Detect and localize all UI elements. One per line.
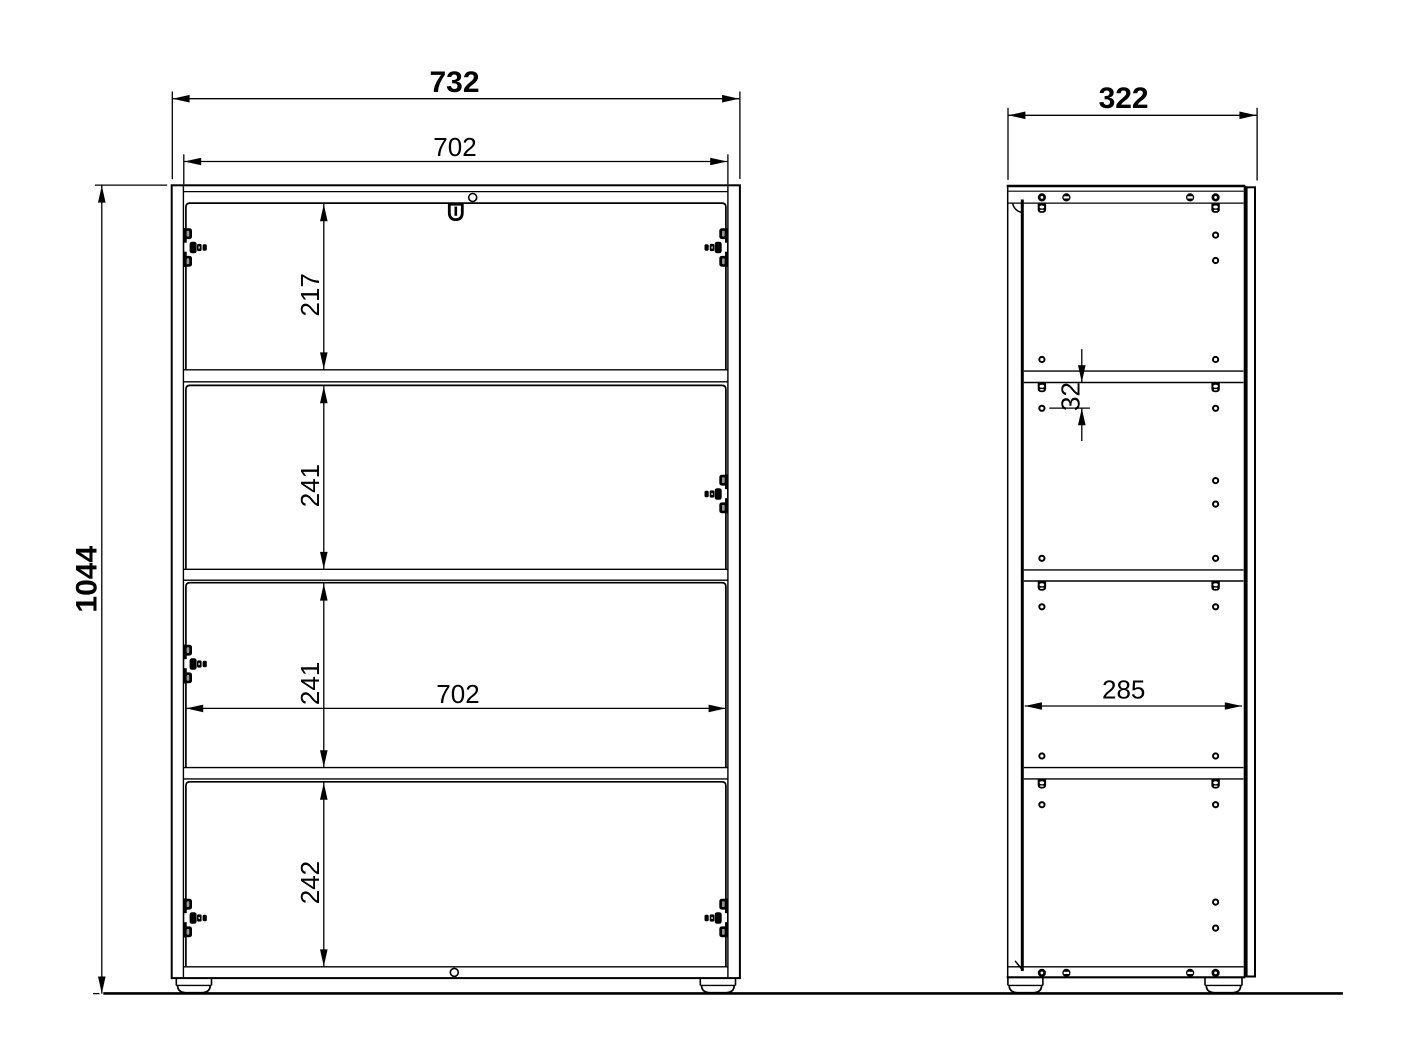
svg-text:32: 32: [1056, 382, 1086, 411]
svg-text:322: 322: [1099, 82, 1149, 115]
svg-text:241: 241: [295, 662, 325, 705]
svg-text:1044: 1044: [71, 546, 104, 613]
svg-text:241: 241: [295, 464, 325, 507]
svg-text:702: 702: [433, 132, 476, 162]
svg-text:285: 285: [1102, 674, 1145, 704]
svg-text:702: 702: [436, 679, 479, 709]
svg-text:732: 732: [429, 66, 479, 99]
svg-text:242: 242: [295, 861, 325, 904]
svg-text:217: 217: [295, 273, 325, 316]
